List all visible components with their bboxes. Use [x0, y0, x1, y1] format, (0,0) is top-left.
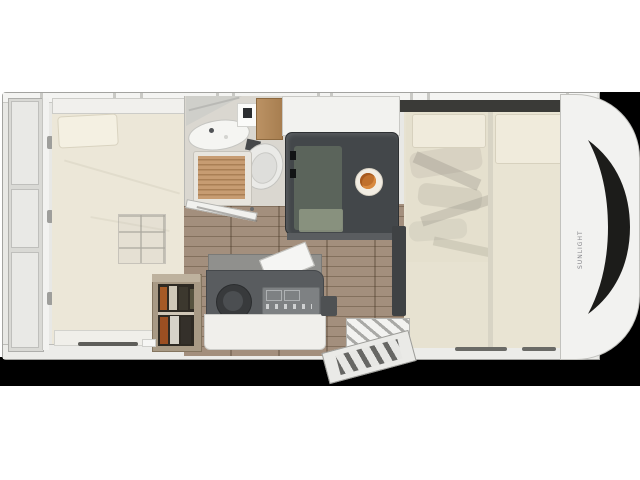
dinette-bench-panel [299, 209, 343, 232]
fridge-item [160, 287, 167, 310]
doorway-jamb [392, 226, 406, 316]
kitchen-front-panel [204, 314, 326, 350]
rear-bed-head-cabinet [52, 98, 186, 114]
stove-burner-grate [284, 290, 300, 301]
kitchen-sink-basin [223, 291, 243, 311]
cab-nose [560, 94, 640, 360]
fridge-item [190, 289, 194, 309]
fridge-item [170, 316, 179, 344]
rear-bed-pillow [57, 113, 119, 148]
storage-shelf-cell [11, 101, 39, 185]
dinette-bench-edge [287, 233, 397, 240]
stove-knobs [266, 304, 312, 309]
faucet-icon [209, 128, 214, 133]
service-hatch-handle [78, 342, 138, 346]
wall-fitting [142, 339, 156, 347]
front-bed-pillow-right [495, 114, 563, 164]
fridge-item [169, 286, 177, 310]
bathroom-wood-cabinet [256, 98, 283, 140]
table-bracket [290, 151, 296, 160]
skylight-glass [243, 108, 252, 118]
fridge-item [179, 287, 188, 310]
front-bed-frame-edge [400, 100, 580, 112]
sink-drain [224, 135, 228, 139]
plate-food [360, 173, 376, 189]
table-bracket [290, 169, 296, 178]
storage-shelf-cell [11, 189, 39, 248]
fridge-item [160, 317, 168, 344]
shower-wood-grate [198, 156, 245, 199]
service-hatch-handle [455, 347, 507, 351]
fridge-item [181, 317, 191, 344]
dinette-overhead-locker [282, 96, 400, 136]
motorhome-floorplan-top-view: SUNLIGHT [0, 0, 640, 480]
ghost-ladder-overlay [118, 214, 166, 264]
stove-burner-grate [266, 290, 282, 301]
fridge-cabinet-top [152, 274, 200, 282]
backdrop-bottom-band [0, 357, 640, 386]
service-hatch-handle [522, 347, 556, 351]
bathroom-door-handle [250, 207, 254, 211]
storage-shelf-cell [11, 252, 39, 348]
fridge-shelf [158, 312, 194, 315]
door-side-unit [321, 296, 337, 316]
brand-text: SUNLIGHT [577, 195, 584, 269]
front-bed-pillow-left [412, 114, 486, 148]
